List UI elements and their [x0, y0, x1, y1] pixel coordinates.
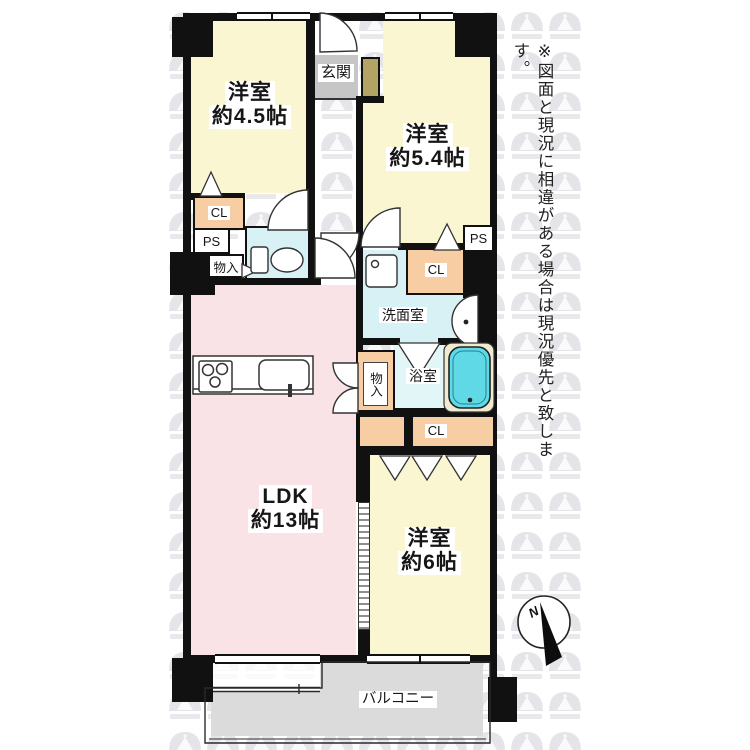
floor-plan: N 洋室 約4.5帖 洋室 約5.4帖 洋室 約6帖 LDK 約13帖 玄関 洗…	[0, 0, 750, 750]
wall-corner-block	[172, 17, 213, 57]
sliding-door-track	[358, 502, 370, 630]
window	[385, 12, 453, 21]
shoe-cabinet	[361, 57, 380, 98]
balcony-inset	[213, 664, 320, 692]
entrance-genkan	[313, 55, 358, 100]
storage-1-box	[208, 254, 244, 278]
wall-segment	[358, 448, 370, 502]
storage-2-box	[356, 350, 395, 412]
wall-segment	[356, 96, 363, 250]
window-balcony-ldk	[215, 654, 320, 664]
room-western-6	[366, 455, 490, 655]
pipe-space-2	[463, 225, 494, 252]
pipe-space-1	[193, 228, 230, 254]
wall-corner-block	[488, 677, 517, 722]
wall-segment	[356, 448, 497, 455]
room-western-5-4-ext	[363, 103, 385, 245]
wall-segment	[183, 278, 321, 285]
washroom-upper	[363, 250, 408, 345]
closet-1	[193, 196, 245, 230]
wall-segment	[356, 338, 400, 345]
room-ldk	[191, 285, 356, 655]
wall-corner-block	[455, 15, 497, 57]
balcony-right	[320, 663, 483, 736]
wall-segment	[490, 13, 497, 677]
wall-segment	[356, 250, 363, 363]
wall-segment	[308, 226, 315, 282]
disclaimer-text: ※図面と現況に相違がある場合は現況優先と致します。	[526, 42, 556, 492]
wall-segment	[463, 252, 494, 298]
wall-segment	[438, 338, 497, 345]
window	[237, 12, 310, 21]
storage-row-left	[358, 415, 406, 448]
window-balcony-room6	[367, 654, 470, 664]
closet-3	[411, 415, 495, 448]
wall-corner-block	[172, 658, 213, 702]
closet-2	[406, 248, 465, 295]
wall-segment	[306, 13, 315, 228]
wall-segment	[183, 13, 191, 662]
bathroom	[393, 345, 490, 410]
balcony-left	[211, 692, 320, 736]
toilet-room	[245, 226, 312, 280]
